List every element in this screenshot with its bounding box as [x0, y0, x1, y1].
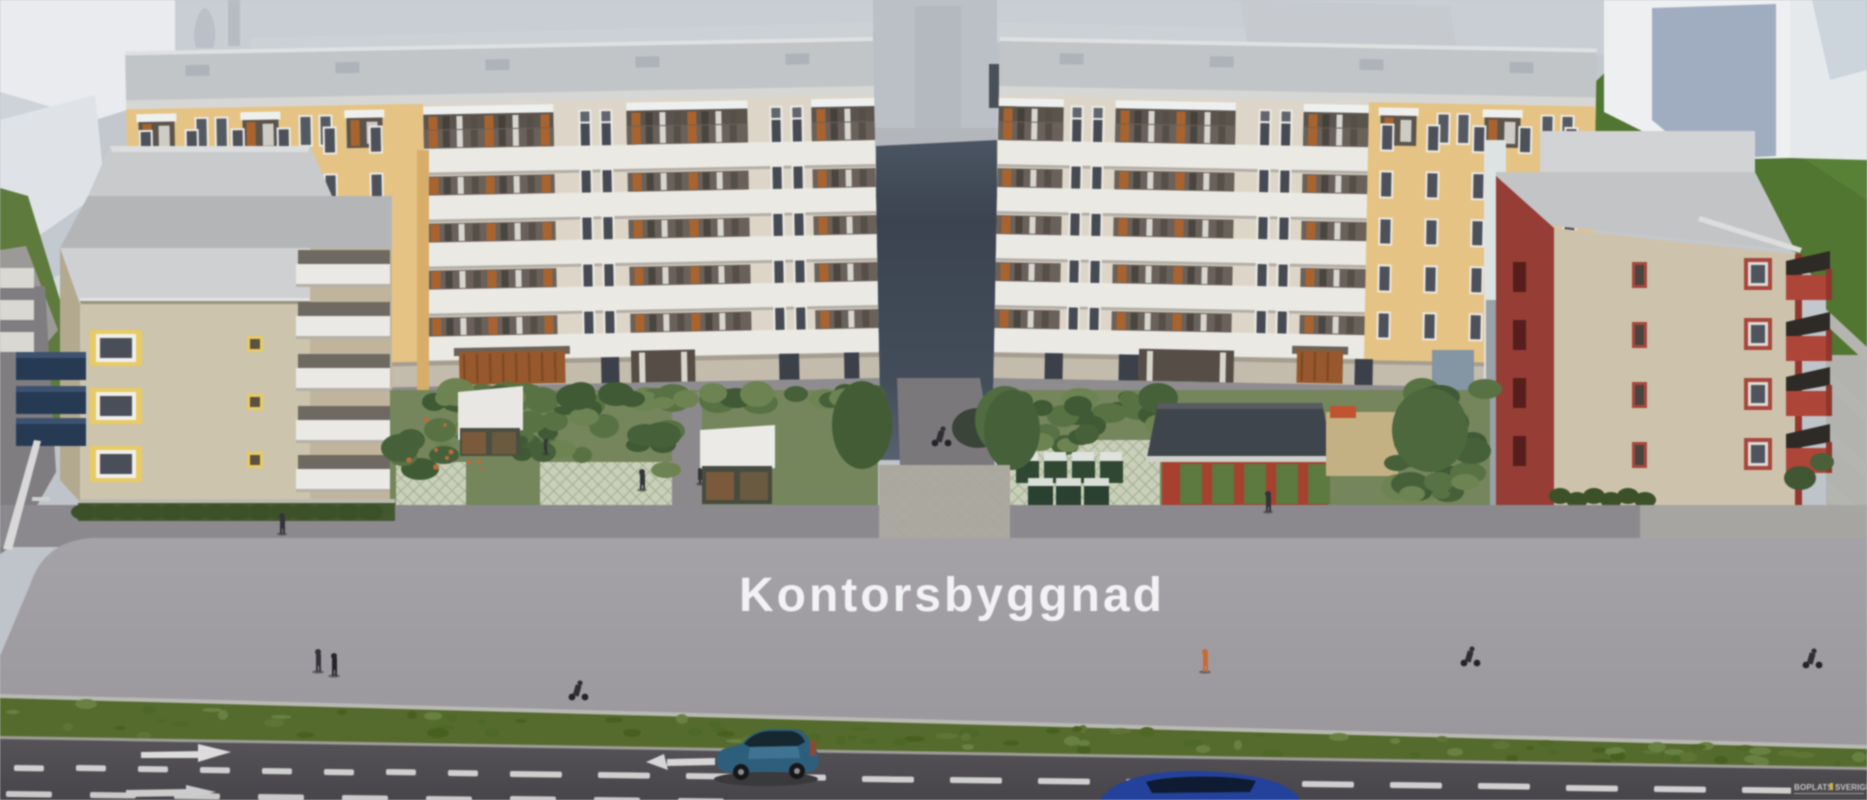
svg-text:Kontorsbyggnad: Kontorsbyggnad: [739, 569, 1165, 622]
svg-text:BOPLATS: BOPLATS: [1794, 783, 1833, 792]
svg-text:SVERIGE: SVERIGE: [1835, 783, 1867, 792]
